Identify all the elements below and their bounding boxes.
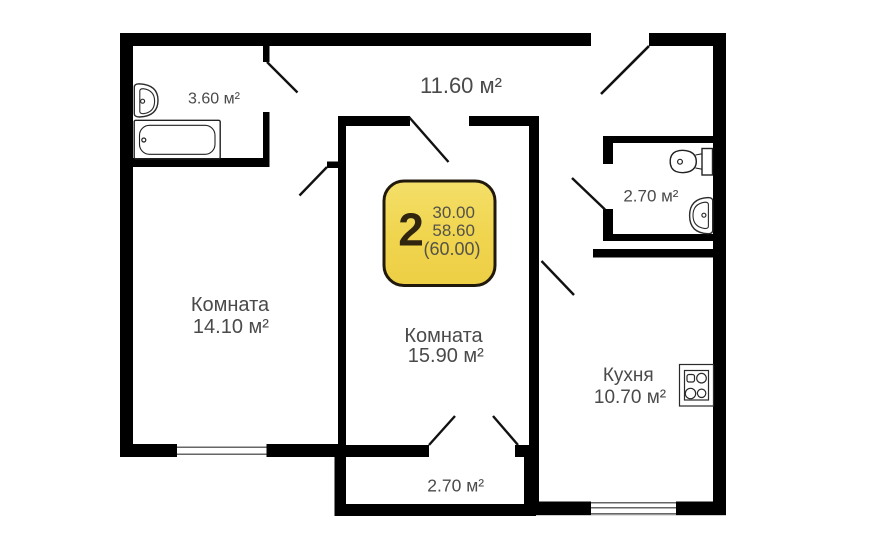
svg-text:Комната: Комната bbox=[191, 294, 270, 316]
svg-text:2: 2 bbox=[398, 204, 424, 256]
svg-text:58.60: 58.60 bbox=[432, 221, 475, 240]
svg-text:11.60 м²: 11.60 м² bbox=[420, 73, 502, 98]
svg-text:2.70 м²: 2.70 м² bbox=[427, 476, 484, 496]
svg-text:3.60 м²: 3.60 м² bbox=[188, 91, 241, 108]
svg-text:(60.00): (60.00) bbox=[423, 239, 480, 259]
svg-text:Комната: Комната bbox=[404, 325, 483, 347]
svg-text:15.90 м²: 15.90 м² bbox=[408, 345, 484, 367]
svg-text:Кухня: Кухня bbox=[603, 365, 654, 386]
svg-text:14.10 м²: 14.10 м² bbox=[193, 316, 269, 338]
svg-text:10.70 м²: 10.70 м² bbox=[594, 387, 666, 408]
svg-text:2.70 м²: 2.70 м² bbox=[623, 187, 678, 206]
svg-text:30.00: 30.00 bbox=[432, 203, 475, 222]
